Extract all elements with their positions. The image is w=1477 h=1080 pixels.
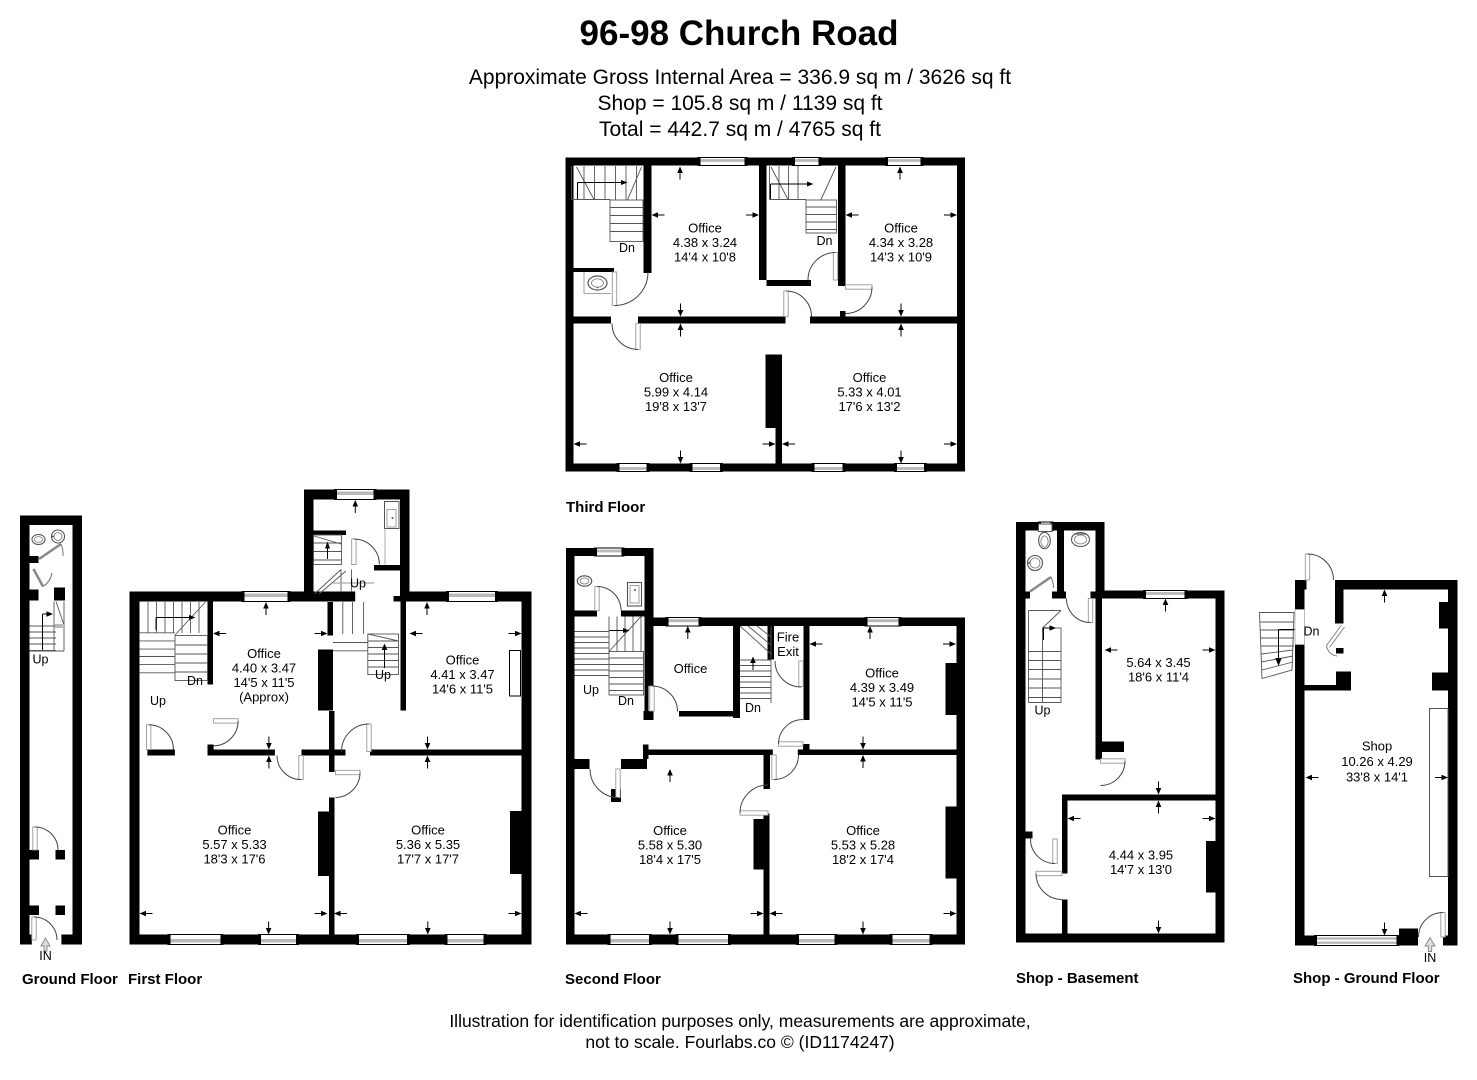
svg-text:IN: IN xyxy=(1424,951,1437,965)
svg-text:4.40 x 3.47: 4.40 x 3.47 xyxy=(232,660,296,675)
svg-text:Dn: Dn xyxy=(619,241,635,255)
svg-text:Total = 442.7 sq m / 4765 sq f: Total = 442.7 sq m / 4765 sq ft xyxy=(599,118,881,141)
svg-text:Shop: Shop xyxy=(1362,739,1392,754)
svg-text:Up: Up xyxy=(583,683,599,697)
svg-text:Third Floor: Third Floor xyxy=(566,499,645,516)
svg-text:Office: Office xyxy=(659,370,693,385)
svg-text:17'6 x 13'2: 17'6 x 13'2 xyxy=(838,399,900,414)
svg-text:Dn: Dn xyxy=(187,674,203,688)
svg-text:Exit: Exit xyxy=(777,644,799,659)
svg-text:Approximate Gross Internal Are: Approximate Gross Internal Area = 336.9 … xyxy=(469,66,1011,89)
svg-text:10.26 x 4.29: 10.26 x 4.29 xyxy=(1341,754,1413,769)
svg-text:Up: Up xyxy=(375,668,391,682)
svg-text:Office: Office xyxy=(247,646,281,661)
svg-text:Office: Office xyxy=(674,661,708,676)
svg-text:Ground Floor: Ground Floor xyxy=(22,971,118,988)
svg-text:Up: Up xyxy=(150,694,166,708)
svg-text:First Floor: First Floor xyxy=(128,971,202,988)
svg-text:5.58 x 5.30: 5.58 x 5.30 xyxy=(638,838,702,853)
svg-text:14'6 x 11'5: 14'6 x 11'5 xyxy=(432,682,493,697)
svg-text:Office: Office xyxy=(853,370,887,385)
svg-text:not to scale. Fourlabs.co © (I: not to scale. Fourlabs.co © (ID1174247) xyxy=(585,1032,894,1052)
svg-text:5.99 x 4.14: 5.99 x 4.14 xyxy=(644,385,708,400)
svg-text:Up: Up xyxy=(1035,704,1051,718)
svg-text:96-98 Church Road: 96-98 Church Road xyxy=(580,14,899,53)
svg-text:14'5 x 11'5: 14'5 x 11'5 xyxy=(233,675,294,690)
svg-text:14'3 x 10'9: 14'3 x 10'9 xyxy=(870,250,932,265)
svg-text:5.53 x 5.28: 5.53 x 5.28 xyxy=(831,838,895,853)
svg-text:Office: Office xyxy=(846,823,880,838)
svg-text:Office: Office xyxy=(411,823,445,838)
svg-text:14'7 x 13'0: 14'7 x 13'0 xyxy=(1110,862,1172,877)
svg-text:Office: Office xyxy=(688,221,722,236)
svg-text:Shop - Basement: Shop - Basement xyxy=(1016,970,1139,987)
svg-text:Office: Office xyxy=(446,653,480,668)
svg-text:Dn: Dn xyxy=(618,694,634,708)
svg-text:17'7 x 17'7: 17'7 x 17'7 xyxy=(397,852,459,867)
svg-text:19'8 x 13'7: 19'8 x 13'7 xyxy=(645,399,707,414)
svg-text:4.39 x 3.49: 4.39 x 3.49 xyxy=(850,680,914,695)
svg-text:Office: Office xyxy=(218,823,252,838)
svg-text:4.38 x 3.24: 4.38 x 3.24 xyxy=(673,235,737,250)
svg-text:Fire: Fire xyxy=(777,630,799,645)
svg-text:Shop - Ground Floor: Shop - Ground Floor xyxy=(1293,970,1440,987)
svg-text:Office: Office xyxy=(865,666,899,681)
svg-text:5.64 x 3.45: 5.64 x 3.45 xyxy=(1126,655,1190,670)
svg-text:14'4 x 10'8: 14'4 x 10'8 xyxy=(674,250,736,265)
svg-text:5.33 x 4.01: 5.33 x 4.01 xyxy=(837,385,901,400)
svg-text:18'3 x 17'6: 18'3 x 17'6 xyxy=(203,852,265,867)
svg-text:Up: Up xyxy=(350,577,366,591)
svg-text:18'4 x 17'5: 18'4 x 17'5 xyxy=(639,852,701,867)
svg-text:18'2 x 17'4: 18'2 x 17'4 xyxy=(832,852,894,867)
svg-text:Dn: Dn xyxy=(745,701,761,715)
svg-text:Office: Office xyxy=(884,221,918,236)
svg-text:Illustration for identificatio: Illustration for identification purposes… xyxy=(449,1011,1030,1031)
svg-text:14'5 x 11'5: 14'5 x 11'5 xyxy=(851,695,912,710)
svg-text:Shop = 105.8 sq m / 1139 sq ft: Shop = 105.8 sq m / 1139 sq ft xyxy=(597,92,882,115)
svg-text:4.41 x 3.47: 4.41 x 3.47 xyxy=(430,667,494,682)
svg-text:4.44 x 3.95: 4.44 x 3.95 xyxy=(1109,848,1173,863)
svg-text:4.34 x 3.28: 4.34 x 3.28 xyxy=(869,235,933,250)
svg-text:Second Floor: Second Floor xyxy=(565,971,661,988)
svg-text:5.57 x 5.33: 5.57 x 5.33 xyxy=(202,837,266,852)
svg-text:5.36 x 5.35: 5.36 x 5.35 xyxy=(396,837,460,852)
svg-text:Office: Office xyxy=(653,823,687,838)
svg-text:Dn: Dn xyxy=(1304,625,1320,639)
svg-text:Dn: Dn xyxy=(817,234,833,248)
svg-text:Up: Up xyxy=(33,653,49,667)
svg-text:IN: IN xyxy=(39,949,52,963)
svg-text:18'6 x 11'4: 18'6 x 11'4 xyxy=(1128,670,1189,685)
svg-text:(Approx): (Approx) xyxy=(239,689,289,704)
svg-text:33'8 x 14'1: 33'8 x 14'1 xyxy=(1346,770,1408,785)
